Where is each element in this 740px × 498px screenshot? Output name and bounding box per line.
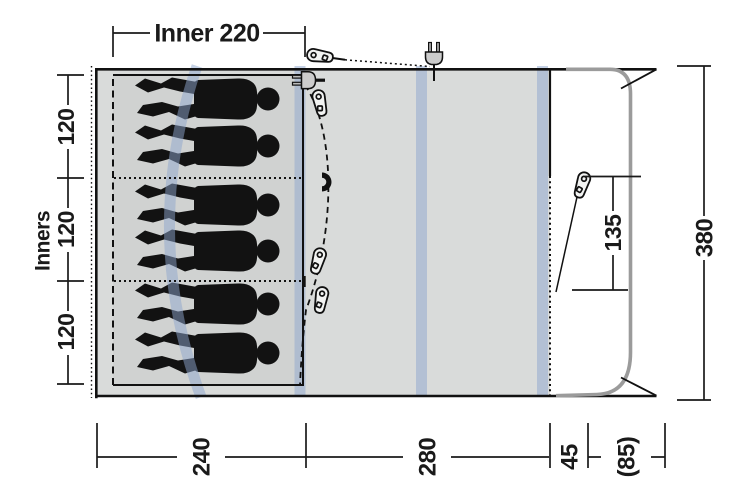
floorplan-canvas: Inner 220 120 120 120 Inners 135 380 240… xyxy=(0,0,740,498)
dim-label-120-3: 120 xyxy=(53,314,79,351)
door-fold-line xyxy=(621,378,657,396)
dim-label-120-1: 120 xyxy=(53,109,79,146)
dim-label-120-2: 120 xyxy=(53,211,79,248)
dimension-inner-width: Inner 220 xyxy=(113,20,305,58)
dimension-total-depth: 380 xyxy=(677,66,718,400)
dim-label-45: 45 xyxy=(556,444,583,470)
dimension-left-sections: 120 120 120 Inners xyxy=(31,75,84,384)
dim-label-240: 240 xyxy=(188,438,215,477)
inners-label: Inners xyxy=(31,211,54,271)
dim-label-135: 135 xyxy=(600,214,626,252)
dim-label-85: (85) xyxy=(613,437,640,478)
door-guyline xyxy=(556,197,577,292)
zip-stop-mark xyxy=(303,276,306,287)
guyline-dotted xyxy=(345,60,430,67)
dim-label-inner-width: Inner 220 xyxy=(154,20,259,48)
tent-floorplan-diagram: Inner 220 120 120 120 Inners 135 380 240… xyxy=(0,0,740,498)
dim-label-380: 380 xyxy=(691,219,718,258)
dim-label-280: 280 xyxy=(414,438,441,477)
dimension-bottom-sections: 240 280 45 (85) xyxy=(97,423,665,477)
guyline-peg-icon xyxy=(572,171,592,200)
guyline-peg-icon xyxy=(306,48,333,64)
